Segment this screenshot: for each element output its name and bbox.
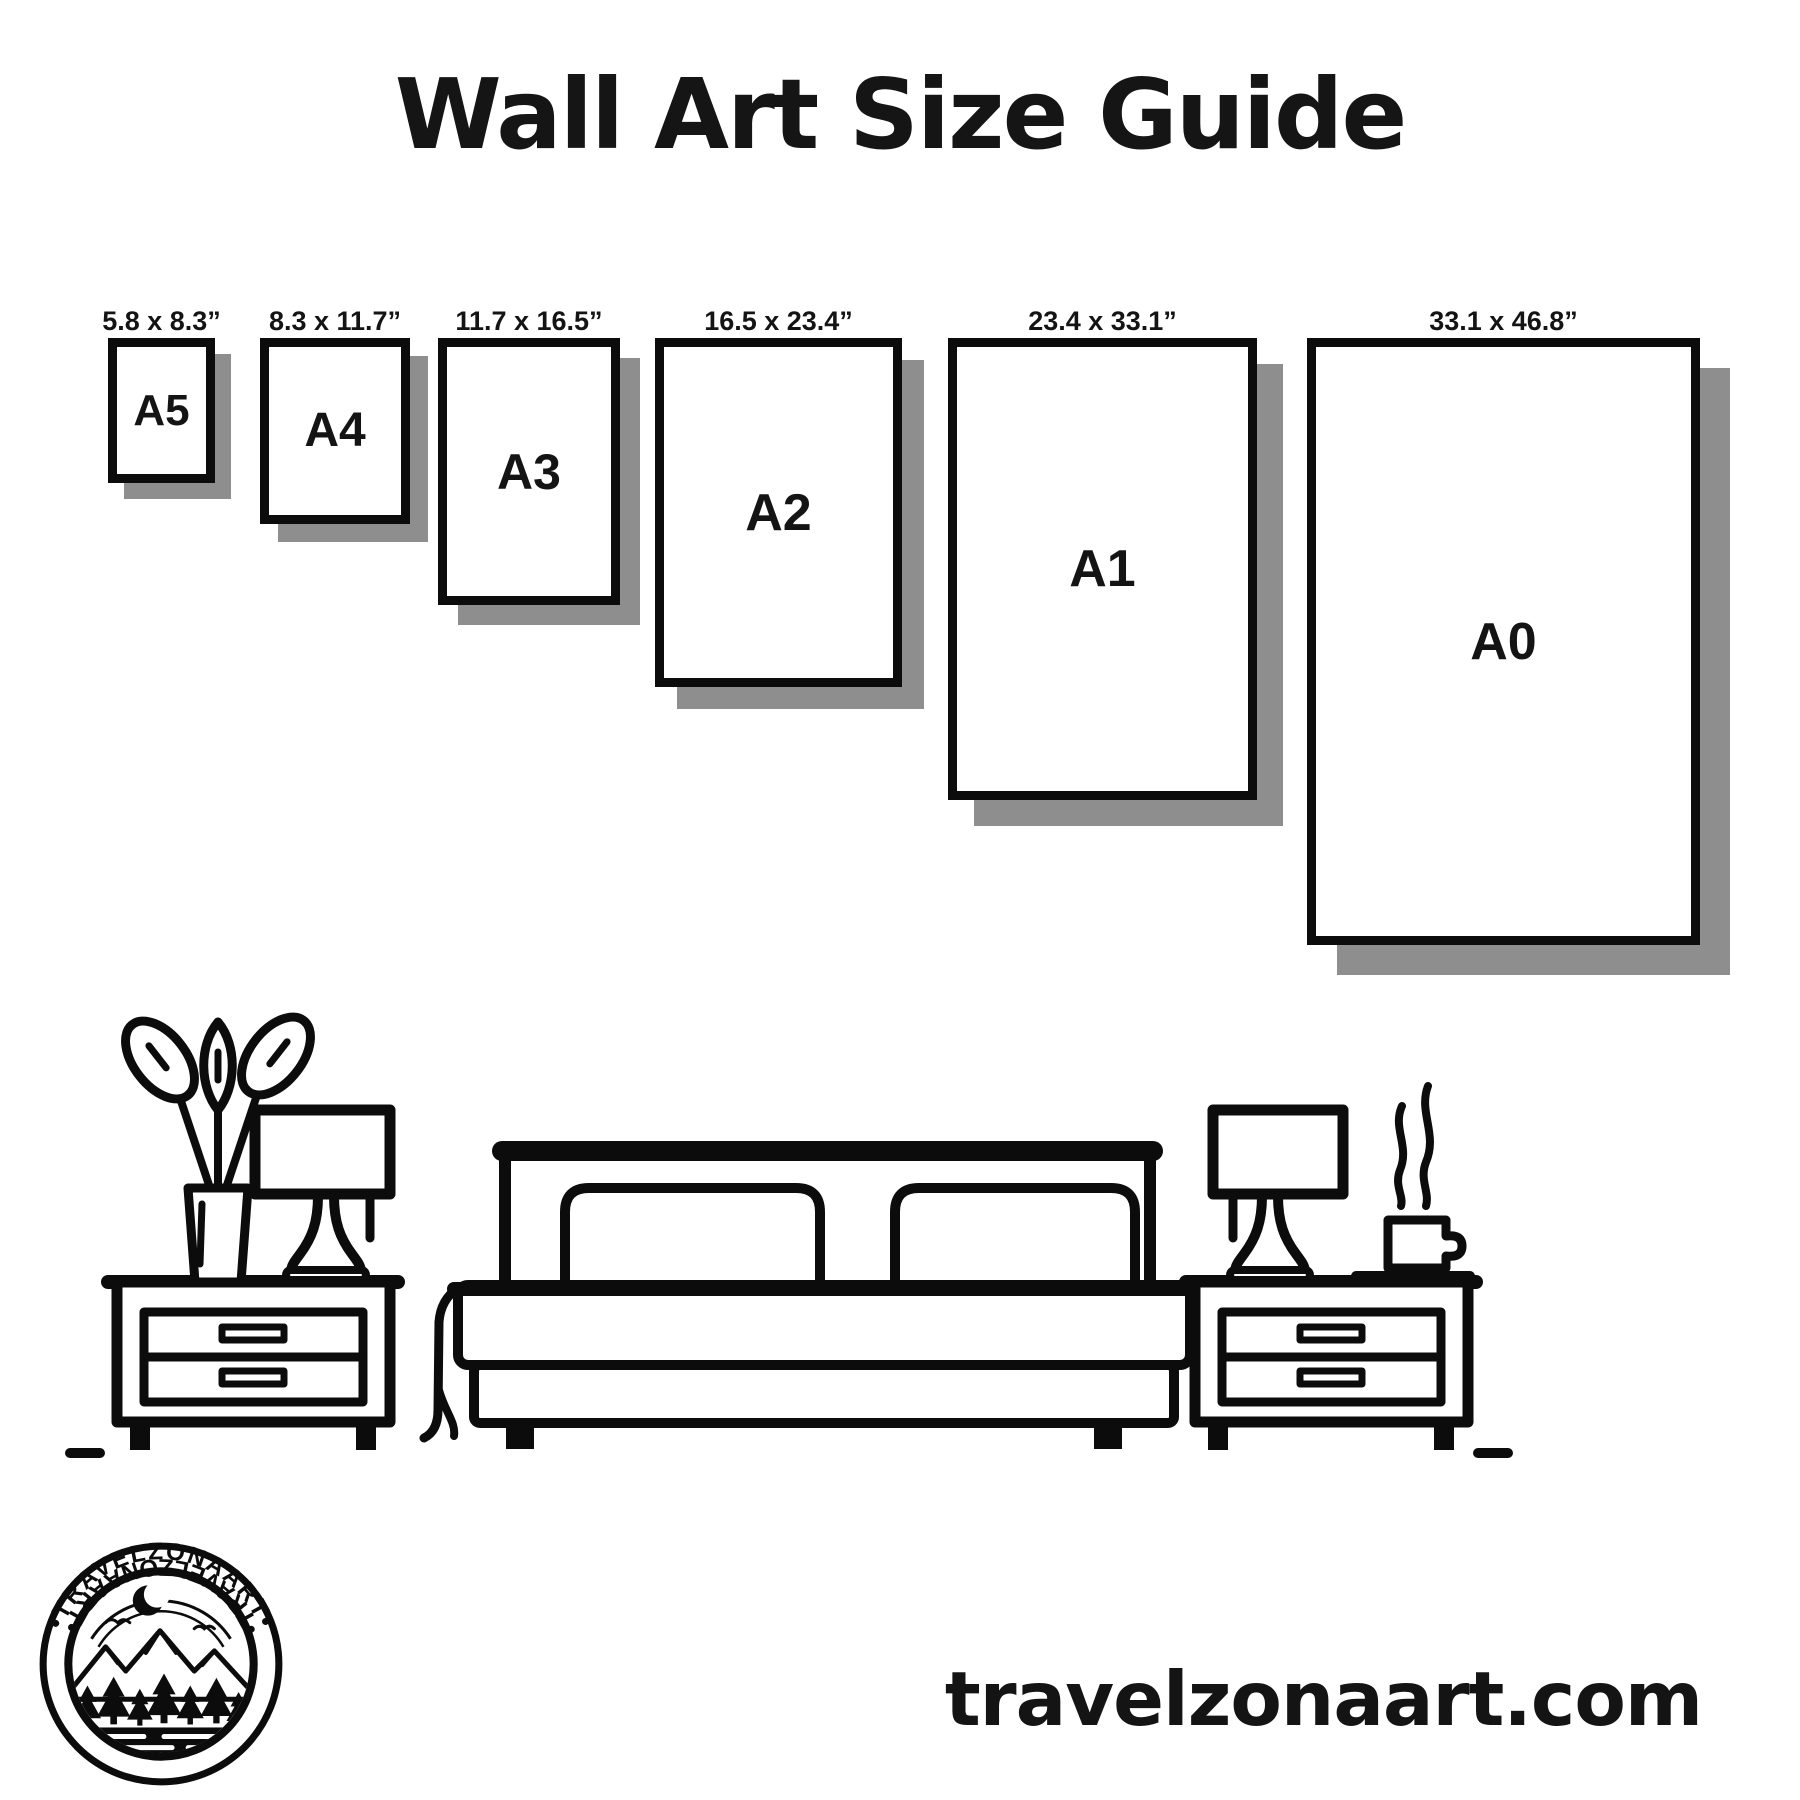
size-box-a0: 33.1 x 46.8”A0 <box>1307 338 1700 945</box>
size-name-label: A0 <box>1470 616 1536 668</box>
size-name-label: A1 <box>1069 543 1135 595</box>
size-guide-row: 5.8 x 8.3”A58.3 x 11.7”A411.7 x 16.5”A31… <box>0 0 1800 1000</box>
size-box-a1: 23.4 x 33.1”A1 <box>948 338 1257 800</box>
size-dimensions-label: 16.5 x 23.4” <box>704 306 853 337</box>
size-dimensions-label: 33.1 x 46.8” <box>1429 306 1578 337</box>
bedroom-illustration <box>50 920 1750 1480</box>
pillow-left-icon <box>565 1188 820 1286</box>
bed-illustration <box>424 1148 1222 1449</box>
coffee-cup-icon <box>1356 1086 1470 1276</box>
size-box-a4: 8.3 x 11.7”A4 <box>260 338 410 524</box>
size-dimensions-label: 5.8 x 8.3” <box>102 306 221 337</box>
size-name-label: A4 <box>304 407 365 455</box>
pillow-right-icon <box>895 1188 1135 1286</box>
size-box-a2: 16.5 x 23.4”A2 <box>655 338 902 687</box>
size-name-label: A2 <box>745 487 811 539</box>
nightstand-left <box>108 1282 398 1450</box>
table-lamp-icon <box>255 1110 390 1280</box>
size-name-label: A5 <box>133 389 189 433</box>
table-lamp-icon <box>1213 1110 1343 1280</box>
brand-logo-badge: •TRAVELZONAART• •TRAVELZONAART• <box>25 1528 297 1800</box>
size-name-label: A3 <box>497 447 561 497</box>
size-dimensions-label: 8.3 x 11.7” <box>269 306 401 337</box>
size-box-a3: 11.7 x 16.5”A3 <box>438 338 620 605</box>
size-box-a5: 5.8 x 8.3”A5 <box>108 338 215 483</box>
nightstand-right <box>1186 1282 1476 1450</box>
size-dimensions-label: 11.7 x 16.5” <box>455 306 602 337</box>
website-url: travelzonaart.com <box>945 1662 1702 1737</box>
vase-icon <box>188 1188 248 1282</box>
size-dimensions-label: 23.4 x 33.1” <box>1028 306 1177 337</box>
